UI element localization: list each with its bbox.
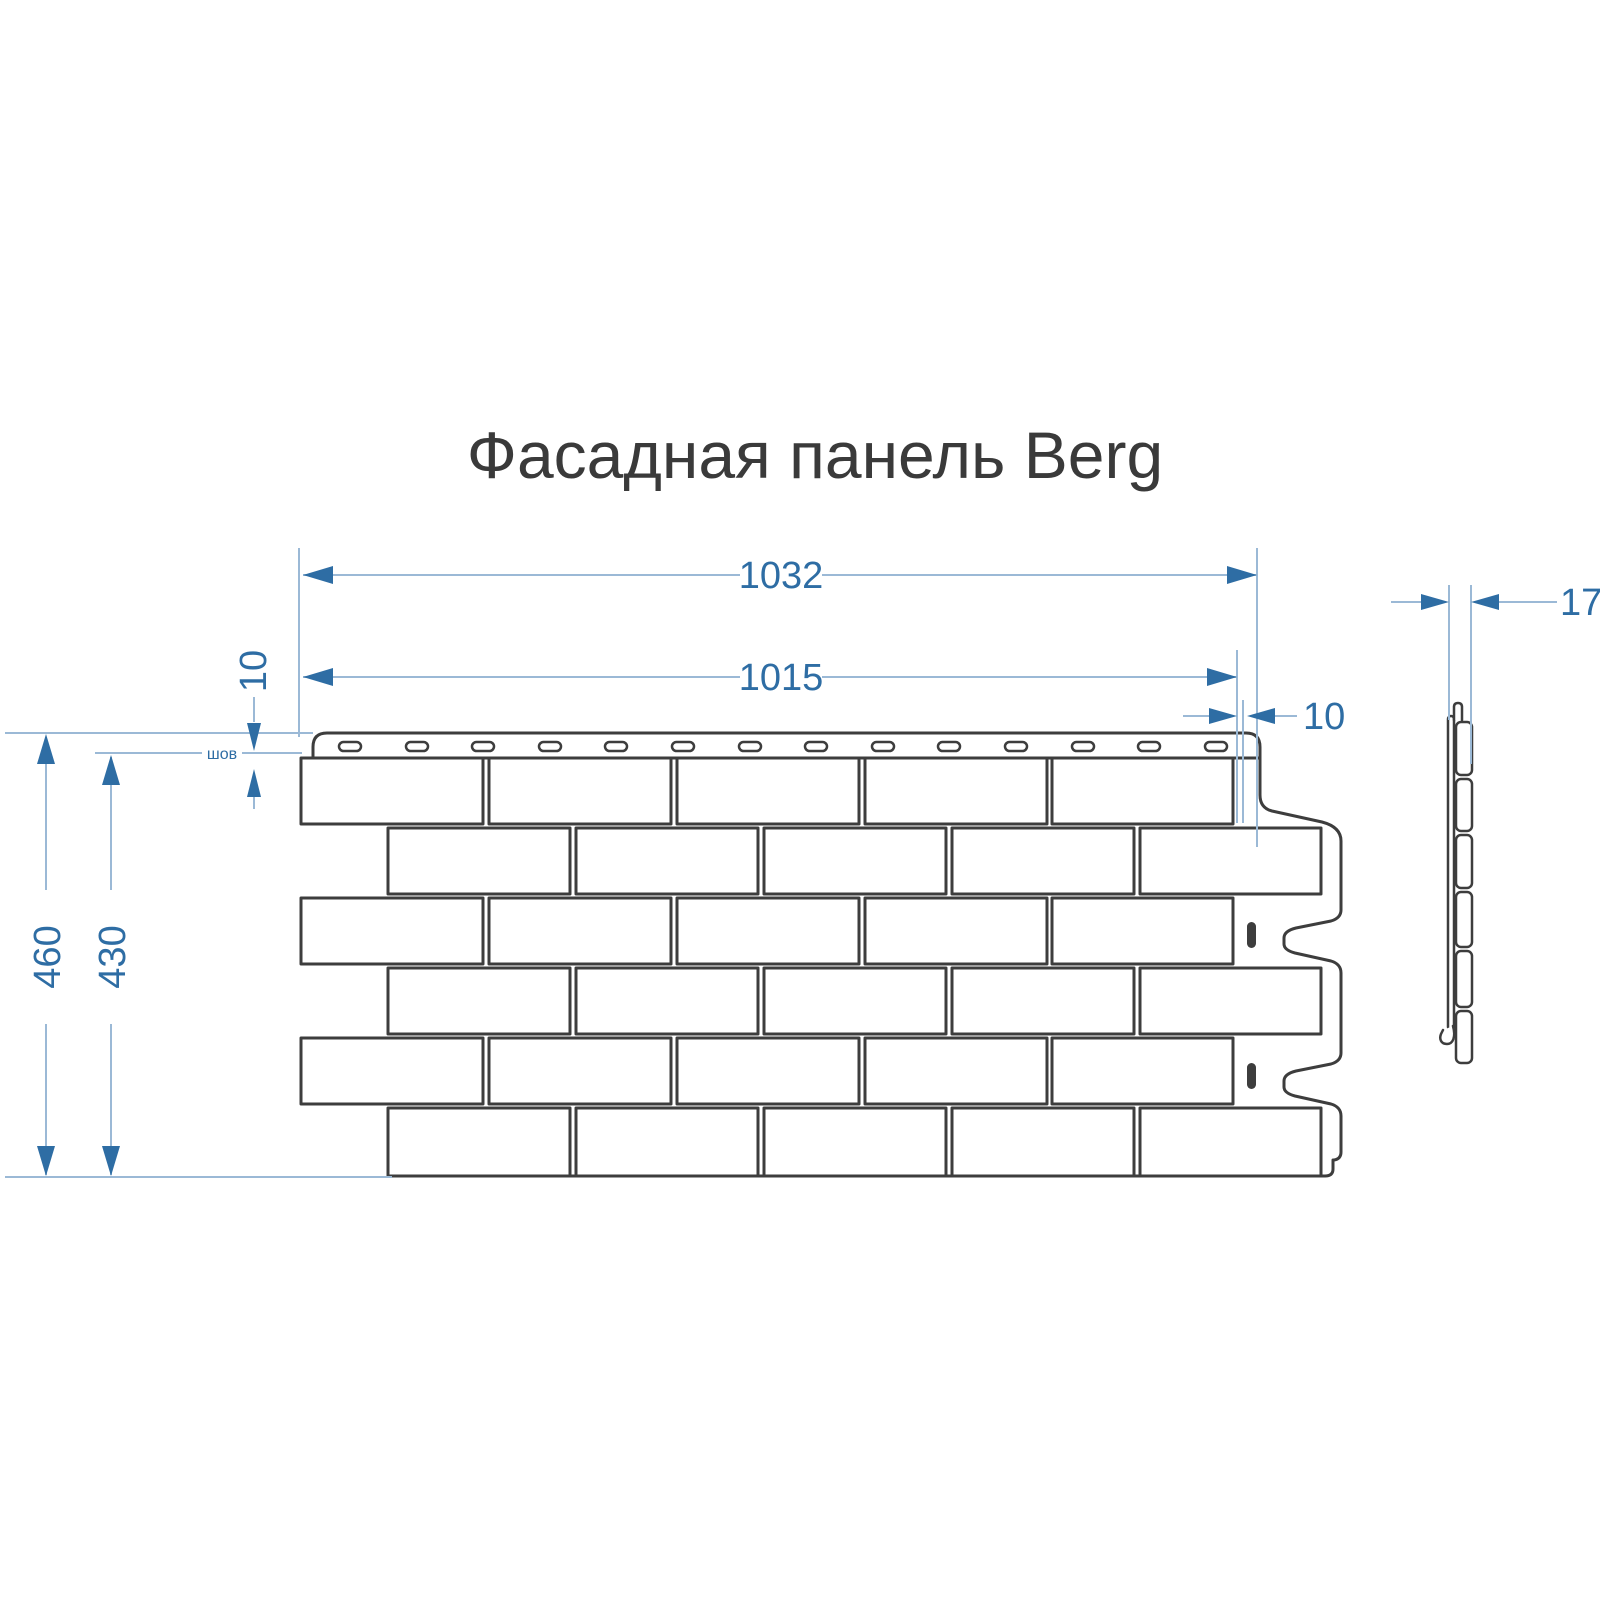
brick — [388, 828, 570, 894]
nail-slot — [472, 742, 494, 751]
brick — [764, 1108, 946, 1176]
brick — [576, 1108, 758, 1176]
technical-drawing: 1032 1015 10 10 шов — [0, 0, 1600, 1600]
brick — [1140, 1108, 1321, 1176]
page-title: Фасадная панель Berg — [467, 418, 1163, 492]
nail-slot — [872, 742, 894, 751]
arrow-right-icon — [1421, 594, 1449, 610]
dim-seam-height: 10 — [233, 650, 275, 809]
brick — [1052, 1038, 1233, 1104]
arrow-left-icon — [1471, 594, 1499, 610]
brick — [489, 758, 671, 824]
side-view — [1440, 703, 1472, 1063]
nail-slot — [739, 742, 761, 751]
brick — [677, 758, 859, 824]
profile-ledge — [1456, 1011, 1472, 1063]
arrow-up-icon — [102, 755, 120, 785]
arrow-right-icon — [1227, 566, 1257, 584]
profile-top-hook — [1454, 703, 1462, 720]
arrow-right-icon — [1209, 708, 1237, 724]
brick — [865, 1038, 1047, 1104]
nail-slot — [339, 742, 361, 751]
brick — [1140, 828, 1321, 894]
dim-thickness: 17 — [1391, 582, 1600, 624]
drawing-page: 1032 1015 10 10 шов — [0, 0, 1600, 1600]
brick — [301, 898, 483, 964]
nail-slot — [1072, 742, 1094, 751]
brick — [1140, 968, 1321, 1034]
arrow-down-icon — [102, 1146, 120, 1176]
profile-ledges — [1456, 722, 1472, 1063]
nail-slot — [406, 742, 428, 751]
brick — [865, 758, 1047, 824]
brick — [301, 758, 483, 824]
nail-slot — [1005, 742, 1027, 751]
brick — [576, 828, 758, 894]
nail-slot — [938, 742, 960, 751]
nail-slot — [1205, 742, 1227, 751]
brick — [764, 968, 946, 1034]
brick — [388, 1108, 570, 1176]
brick — [764, 828, 946, 894]
arrow-right-icon — [1207, 668, 1237, 686]
nail-slot — [605, 742, 627, 751]
brick — [388, 968, 570, 1034]
dim-overall-width: 1032 — [303, 555, 1257, 597]
profile-ledge — [1456, 722, 1472, 775]
brick — [489, 1038, 671, 1104]
brick — [952, 828, 1134, 894]
arrow-left-icon — [1247, 708, 1275, 724]
arrow-down-icon — [37, 1146, 55, 1176]
brick — [1052, 758, 1233, 824]
brick — [1052, 898, 1233, 964]
profile-ledge — [1456, 892, 1472, 947]
lock-slot — [1247, 1063, 1256, 1089]
arrow-left-icon — [303, 668, 333, 686]
brick — [952, 1108, 1134, 1176]
profile-ledge — [1456, 835, 1472, 888]
arrow-up-icon — [247, 769, 261, 797]
dim-brick-area-height: 430 — [92, 755, 134, 1176]
profile-ledge — [1456, 951, 1472, 1007]
brick — [576, 968, 758, 1034]
dim-overall-height-value: 460 — [27, 925, 69, 988]
nail-slot — [1138, 742, 1160, 751]
brick — [677, 1038, 859, 1104]
arrow-left-icon — [303, 566, 333, 584]
brick — [677, 898, 859, 964]
brick-rows — [301, 758, 1321, 1176]
dim-overall-width-value: 1032 — [739, 555, 824, 597]
dim-panel-width: 1015 — [303, 657, 1237, 699]
dim-thickness-value: 17 — [1560, 582, 1600, 624]
front-view — [301, 733, 1341, 1176]
brick — [489, 898, 671, 964]
profile-back-plate — [1448, 716, 1454, 1030]
nail-slot — [805, 742, 827, 751]
dim-seam-height-value: 10 — [233, 650, 275, 692]
profile-ledge — [1456, 779, 1472, 831]
arrow-up-icon — [37, 734, 55, 764]
dim-brick-area-height-value: 430 — [92, 925, 134, 988]
dim-panel-width-value: 1015 — [739, 657, 824, 699]
arrow-down-icon — [247, 723, 261, 751]
dim-edge-offset-value: 10 — [1303, 696, 1345, 738]
nail-slot — [672, 742, 694, 751]
profile-bottom-hook — [1440, 1026, 1454, 1044]
nail-slot — [539, 742, 561, 751]
lock-slot — [1247, 922, 1256, 948]
dim-overall-height: 460 — [27, 734, 69, 1176]
seam-label-group: шов — [202, 744, 242, 763]
brick — [301, 1038, 483, 1104]
seam-label: шов — [207, 746, 237, 763]
brick — [952, 968, 1134, 1034]
brick — [865, 898, 1047, 964]
